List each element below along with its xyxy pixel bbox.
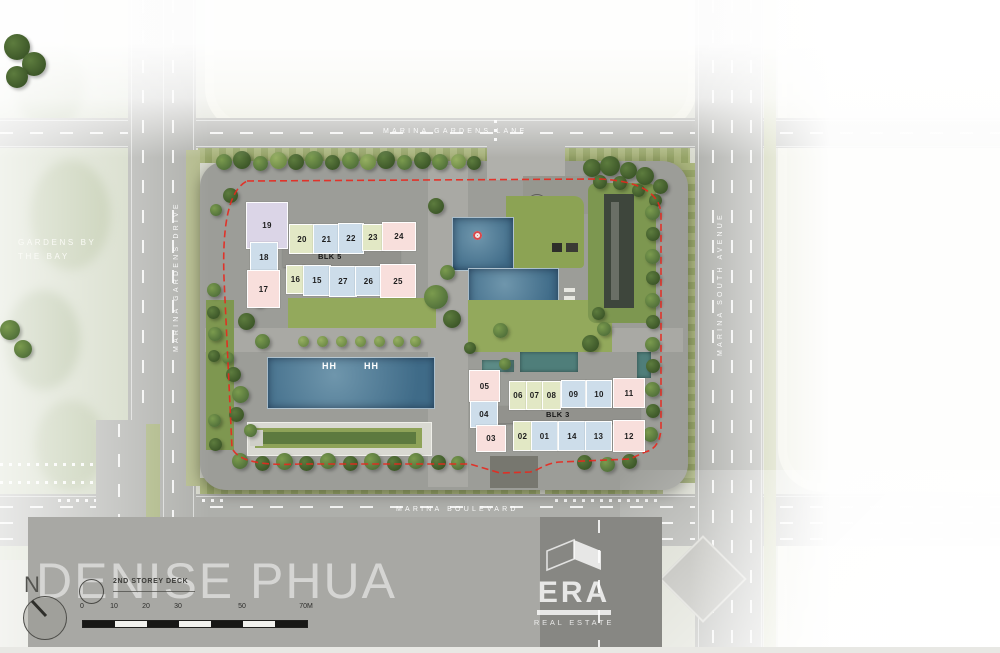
unit-number: 14: [567, 432, 577, 441]
unit-21: 21: [313, 224, 340, 254]
block-label: BLK 3: [546, 410, 570, 419]
scale-segment: [147, 621, 179, 627]
era-wordmark: ERA: [531, 578, 617, 608]
unit-22: 22: [338, 223, 364, 254]
scale-tick-label: 50: [238, 603, 246, 610]
unit-number: 18: [259, 253, 269, 262]
unit-17: 17: [247, 270, 280, 308]
unit-number: 24: [394, 232, 404, 241]
unit-27: 27: [329, 266, 357, 297]
unit-04: 04: [470, 401, 498, 428]
unit-07: 07: [526, 381, 543, 410]
unit-08: 08: [542, 381, 561, 410]
unit-14: 14: [558, 421, 586, 451]
scale-segment: [275, 621, 307, 627]
unit-26: 26: [355, 266, 382, 296]
unit-13: 13: [585, 421, 612, 451]
label-gardens-by-the-bay: GARDENS BY THE BAY: [18, 236, 96, 264]
scale-ticks: 01020305070M: [82, 603, 310, 615]
scale-segments: [82, 620, 308, 628]
unit-number: 16: [291, 275, 301, 284]
scale-tick-label: 70M: [299, 603, 313, 610]
unit-20: 20: [289, 224, 315, 254]
unit-number: 03: [486, 434, 496, 443]
scale-segment: [211, 621, 243, 627]
unit-18: 18: [250, 242, 278, 272]
unit-23: 23: [362, 224, 384, 251]
unit-number: 09: [569, 390, 579, 399]
unit-number: 02: [518, 432, 528, 441]
unit-15: 15: [303, 265, 331, 296]
label-marina-south-avenue: MARINA SOUTH AVENUE: [717, 240, 724, 356]
scale-bar: 01020305070M: [82, 603, 310, 633]
era-bar: [537, 610, 611, 615]
era-subtitle: REAL ESTATE: [531, 618, 617, 627]
unit-01: 01: [531, 421, 558, 451]
unit-03: 03: [476, 425, 506, 452]
unit-number: 27: [338, 277, 348, 286]
unit-number: 06: [513, 391, 523, 400]
scale-tick-label: 30: [174, 603, 182, 610]
unit-number: 23: [368, 233, 378, 242]
unit-number: 04: [479, 410, 489, 419]
unit-number: 22: [346, 234, 356, 243]
deck-legend-line: [113, 591, 195, 592]
unit-number: 05: [480, 382, 490, 391]
compass-north-label: N: [24, 572, 40, 598]
unit-number: 11: [624, 389, 633, 398]
unit-number: 12: [624, 432, 634, 441]
scale-tick-label: 20: [142, 603, 150, 610]
block-label: BLK 5: [318, 252, 342, 261]
era-logo: ERA REAL ESTATE: [531, 538, 617, 627]
scale-tick-label: 10: [110, 603, 118, 610]
label-marina-boulevard: MARINA BOULEVARD: [396, 506, 519, 513]
unit-25: 25: [380, 264, 416, 298]
unit-24: 24: [382, 222, 416, 251]
unit-number: 15: [312, 276, 322, 285]
deck-legend-icon: [79, 579, 104, 604]
scale-segment: [179, 621, 211, 627]
unit-number: 17: [259, 285, 269, 294]
unit-number: 25: [393, 277, 403, 286]
unit-06: 06: [509, 381, 527, 410]
unit-09: 09: [561, 380, 586, 408]
unit-11: 11: [613, 378, 645, 408]
unit-number: 19: [262, 221, 272, 230]
unit-05: 05: [469, 370, 500, 402]
unit-number: 26: [364, 277, 374, 286]
unit-12: 12: [613, 420, 645, 452]
era-house-icon: [543, 538, 605, 578]
label-marina-gardens-drive: MARINA GARDENS DRIVE: [173, 232, 180, 352]
unit-number: 20: [297, 235, 307, 244]
label-marina-gardens-lane: MARINA GARDENS LANE: [383, 128, 527, 135]
scale-tick-label: 0: [80, 603, 84, 610]
scale-segment: [243, 621, 275, 627]
compass-needle-icon: [30, 599, 50, 619]
deck-legend-label: 2ND STOREY DECK: [113, 578, 188, 585]
site-plan-canvas: HH HH 19202122232418171615272625BLK 5050…: [0, 0, 1000, 653]
scale-segment: [83, 621, 115, 627]
unit-number: 01: [540, 432, 550, 441]
bottom-strip: [0, 647, 1000, 653]
scale-segment: [115, 621, 147, 627]
unit-02: 02: [513, 421, 532, 451]
unit-number: 21: [322, 235, 332, 244]
unit-number: 10: [594, 390, 604, 399]
unit-number: 13: [594, 432, 604, 441]
unit-number: 07: [530, 391, 540, 400]
unit-10: 10: [586, 380, 612, 408]
unit-number: 08: [547, 391, 557, 400]
